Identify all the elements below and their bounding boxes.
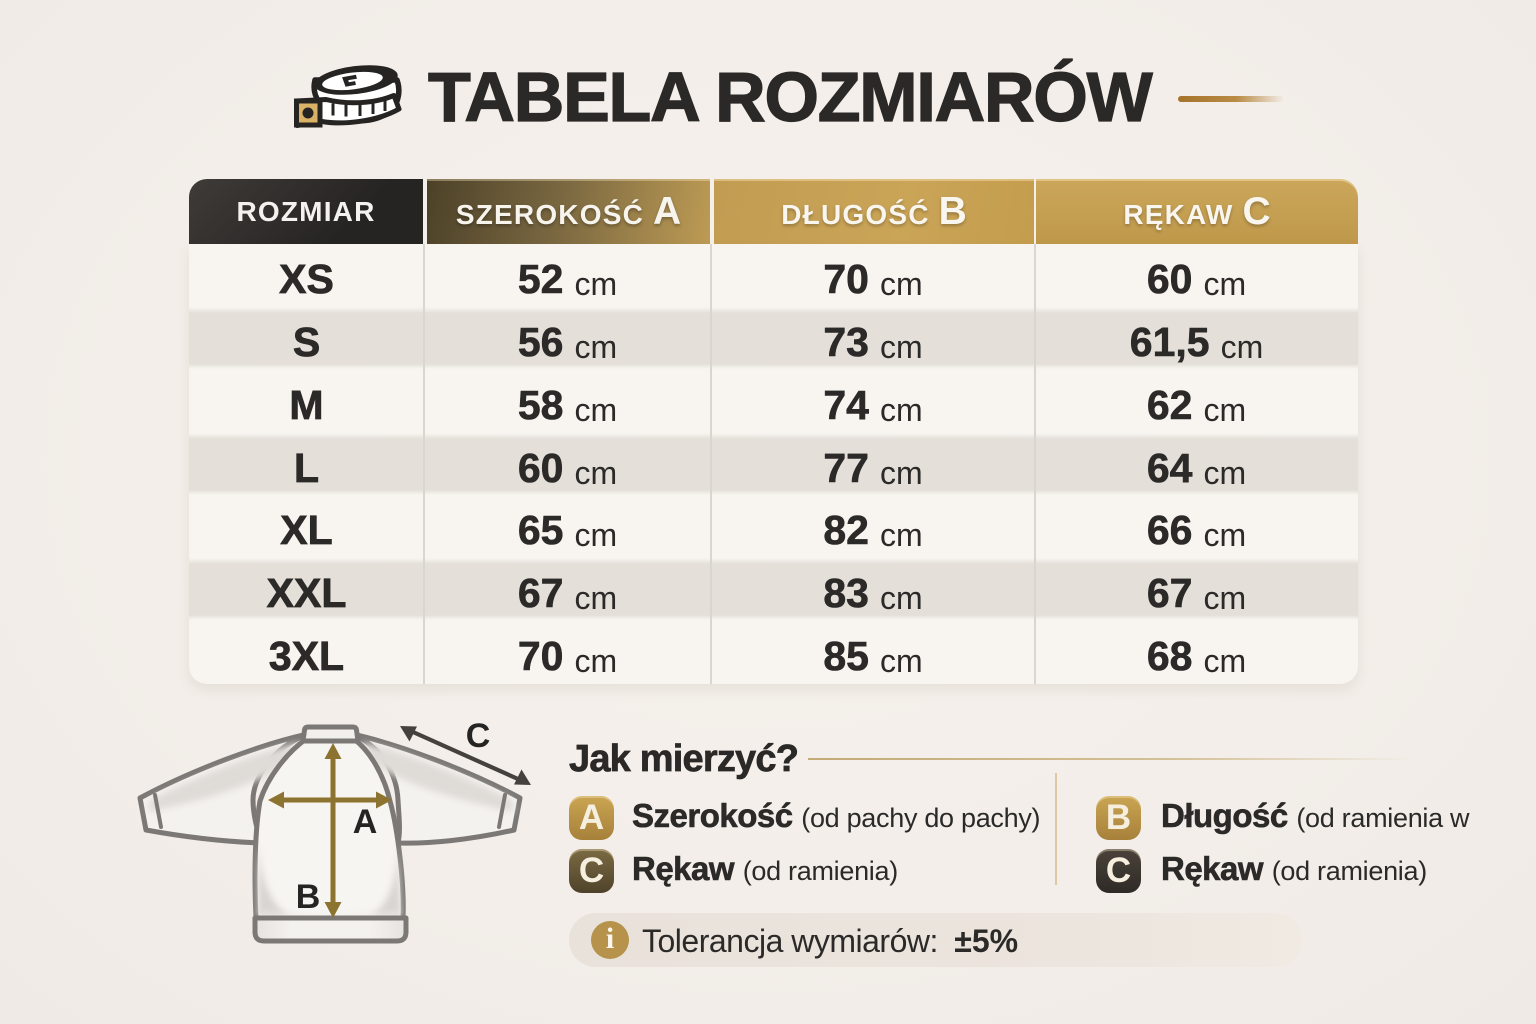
svg-text:C: C [466,717,491,755]
svg-text:B: B [296,878,321,916]
svg-text:A: A [353,803,378,841]
